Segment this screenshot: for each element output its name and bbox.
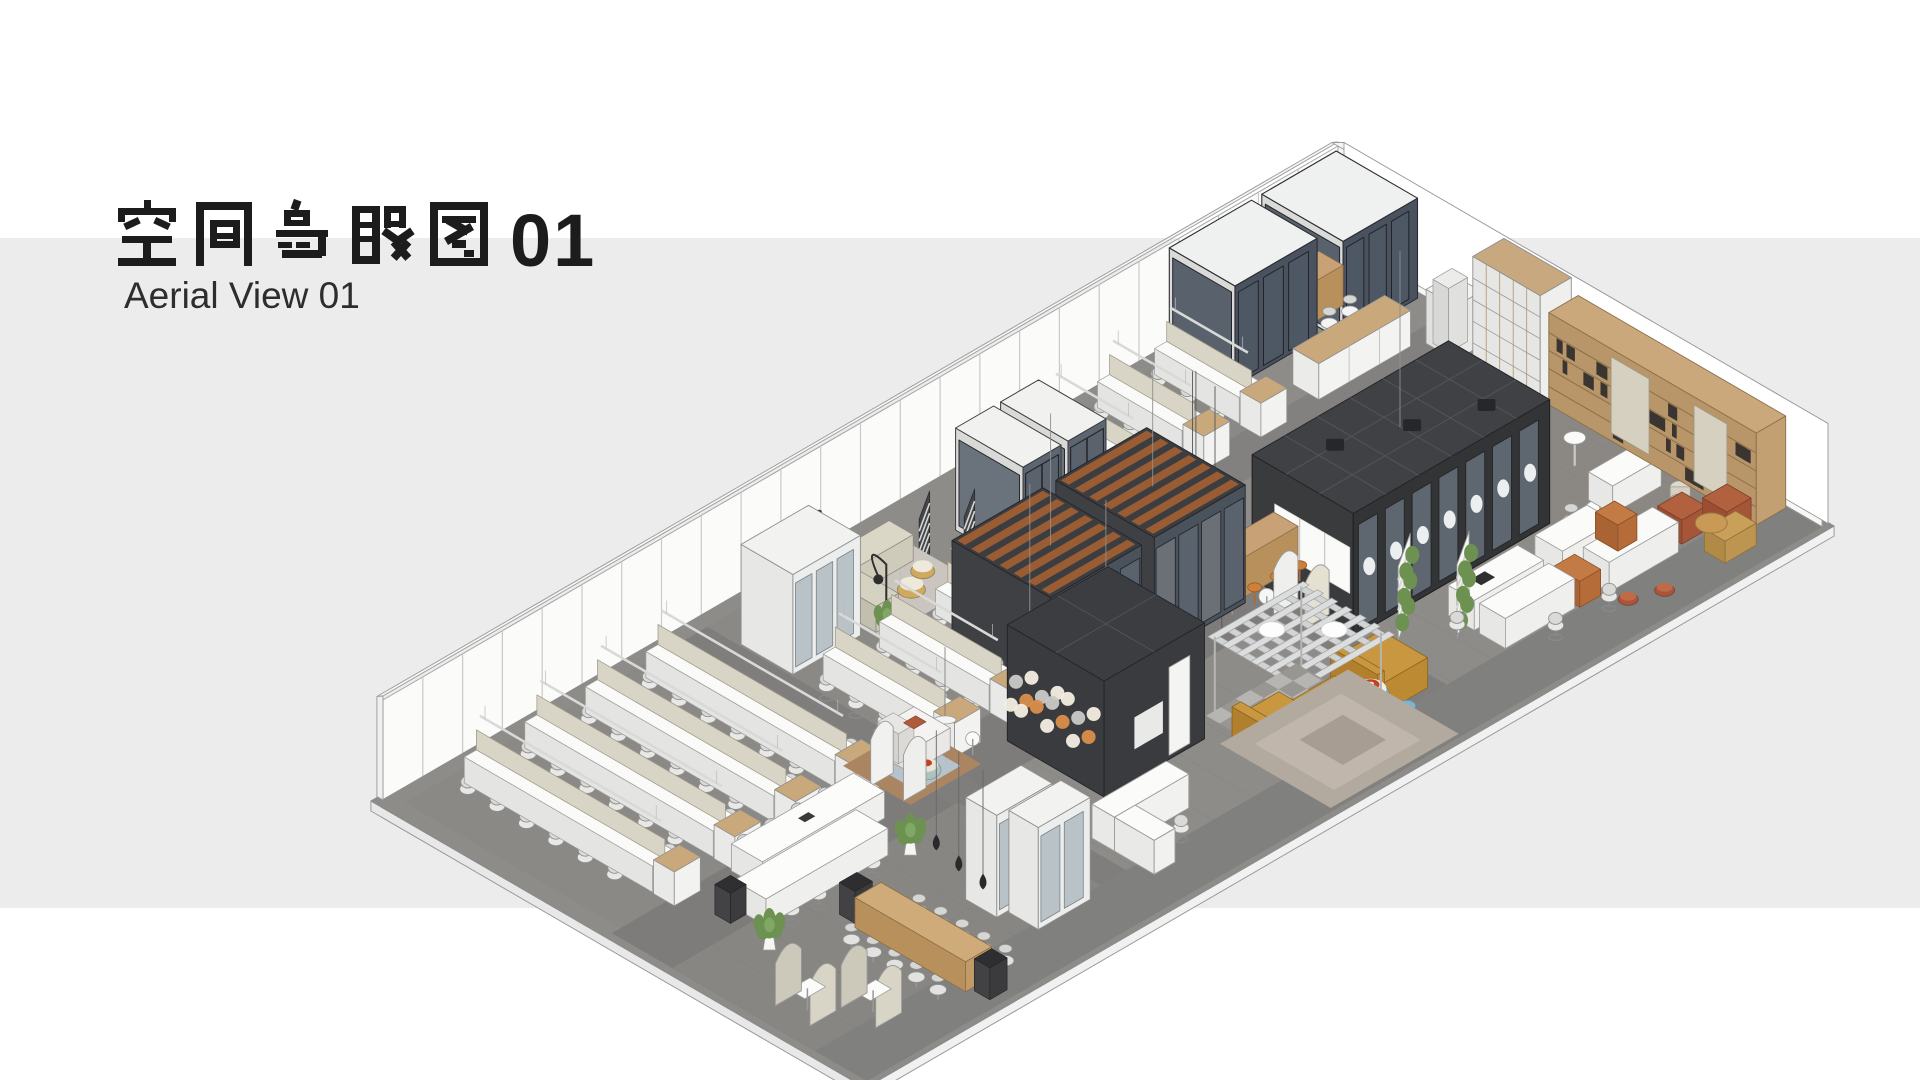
svg-text:01: 01 — [510, 199, 596, 282]
svg-text:Aerial View 01: Aerial View 01 — [124, 275, 360, 316]
